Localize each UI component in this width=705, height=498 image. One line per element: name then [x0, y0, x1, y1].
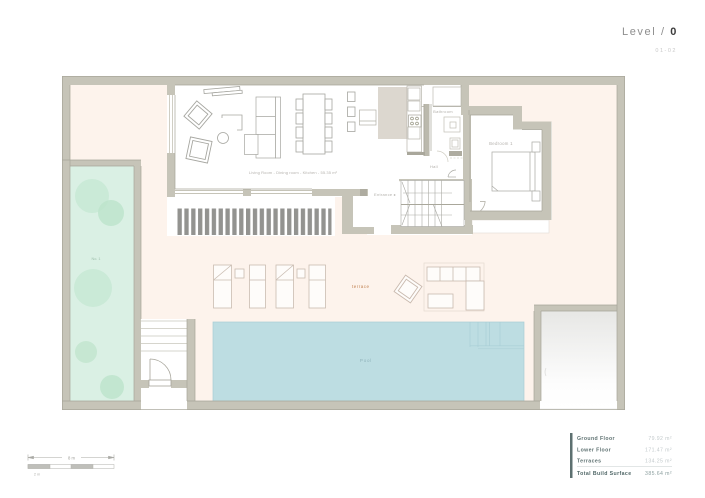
svg-text:8 m: 8 m [68, 455, 75, 460]
svg-text:Bedroom 1: Bedroom 1 [489, 141, 513, 146]
svg-text:01-02: 01-02 [655, 48, 677, 54]
svg-text:Hall: Hall [430, 164, 438, 169]
svg-text:Lower Floor: Lower Floor [577, 448, 611, 454]
svg-text:Level / 0: Level / 0 [622, 26, 678, 38]
svg-text:79.92 m²: 79.92 m² [648, 436, 672, 442]
svg-text:Living Room - Dining room -: Living Room - Dining room - Kitchen - 55… [249, 170, 338, 175]
svg-text:2 m: 2 m [34, 473, 40, 477]
svg-text:Total Build Surface: Total Build Surface [577, 471, 631, 477]
svg-text:Entrance ▸: Entrance ▸ [374, 192, 396, 197]
svg-text:134.25 m²: 134.25 m² [645, 459, 672, 465]
svg-text:Terraces: Terraces [577, 459, 601, 465]
svg-text:Pool: Pool [360, 358, 372, 363]
svg-text:171.47 m²: 171.47 m² [645, 448, 672, 454]
svg-text:Bathroom: Bathroom [433, 109, 453, 114]
svg-text:Ground Floor: Ground Floor [577, 436, 615, 442]
svg-text:No. 1: No. 1 [91, 257, 100, 261]
svg-text:385.64 m²: 385.64 m² [645, 471, 672, 477]
svg-text:terrace: terrace [352, 284, 370, 289]
